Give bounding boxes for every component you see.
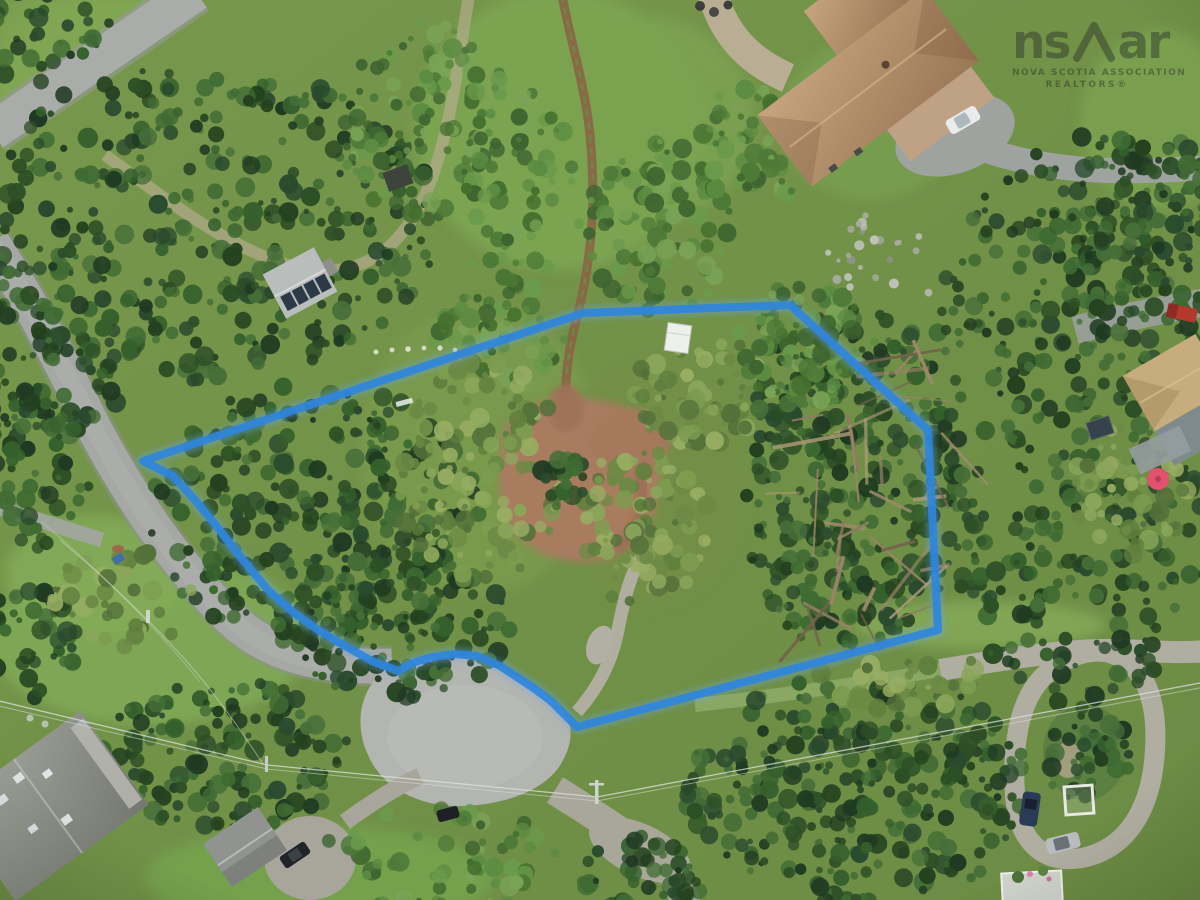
- aerial-photo: ns ar NOVA SCOTIA ASSOCIATION REALTORS®: [0, 0, 1200, 900]
- aerial-photo-scene: [0, 0, 1200, 900]
